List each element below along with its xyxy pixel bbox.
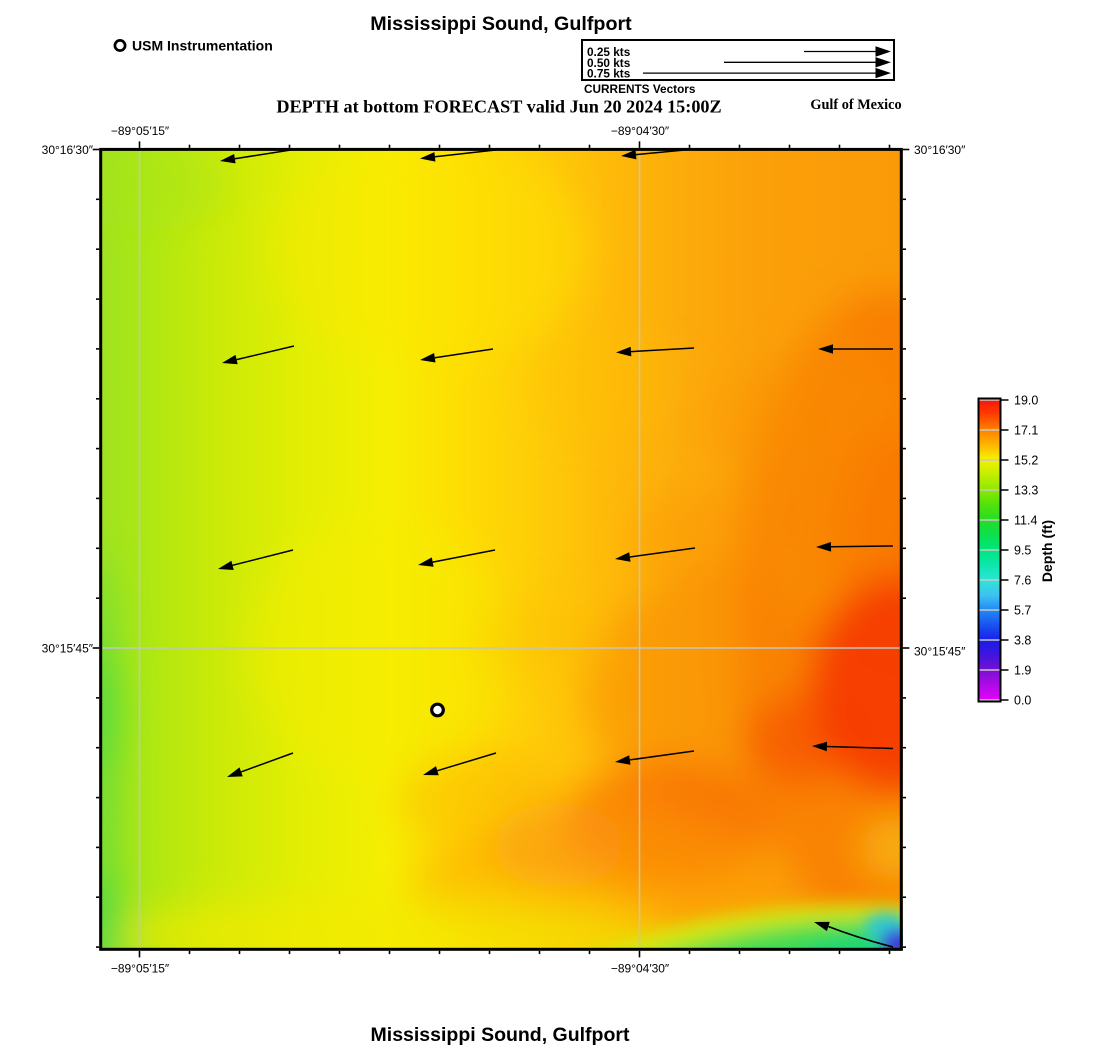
svg-text:7.6: 7.6	[1014, 573, 1031, 587]
svg-text:19.0: 19.0	[1014, 393, 1038, 407]
svg-text:CURRENTS Vectors: CURRENTS Vectors	[584, 82, 696, 96]
svg-text:11.4: 11.4	[1014, 513, 1037, 527]
svg-text:30°16′30″: 30°16′30″	[914, 143, 966, 157]
svg-text:30°15′45″: 30°15′45″	[914, 645, 966, 659]
svg-text:1.9: 1.9	[1014, 663, 1031, 677]
svg-text:Mississippi Sound, Gulfport: Mississippi Sound, Gulfport	[371, 1024, 630, 1046]
svg-text:15.2: 15.2	[1014, 453, 1038, 467]
svg-text:−89°05′15″: −89°05′15″	[111, 124, 170, 138]
svg-text:−89°04′30″: −89°04′30″	[611, 124, 670, 138]
svg-text:DEPTH at bottom FORECAST valid: DEPTH at bottom FORECAST valid Jun 20 20…	[276, 97, 721, 117]
svg-text:9.5: 9.5	[1014, 543, 1031, 557]
svg-text:17.1: 17.1	[1014, 423, 1038, 437]
svg-text:−89°04′30″: −89°04′30″	[611, 962, 670, 976]
svg-text:30°16′30″: 30°16′30″	[42, 143, 94, 157]
svg-text:0.75 kts: 0.75 kts	[587, 67, 631, 81]
svg-text:3.8: 3.8	[1014, 633, 1031, 647]
svg-text:Mississippi Sound, Gulfport: Mississippi Sound, Gulfport	[370, 13, 632, 35]
svg-text:USM Instrumentation: USM Instrumentation	[132, 38, 273, 54]
svg-text:5.7: 5.7	[1014, 603, 1031, 617]
svg-text:Depth (ft): Depth (ft)	[1039, 520, 1055, 582]
svg-text:−89°05′15″: −89°05′15″	[111, 962, 170, 976]
svg-text:0.0: 0.0	[1014, 693, 1031, 707]
svg-text:30°15′45″: 30°15′45″	[42, 642, 94, 656]
svg-text:13.3: 13.3	[1014, 483, 1038, 497]
svg-text:Gulf of Mexico: Gulf of Mexico	[810, 97, 901, 113]
